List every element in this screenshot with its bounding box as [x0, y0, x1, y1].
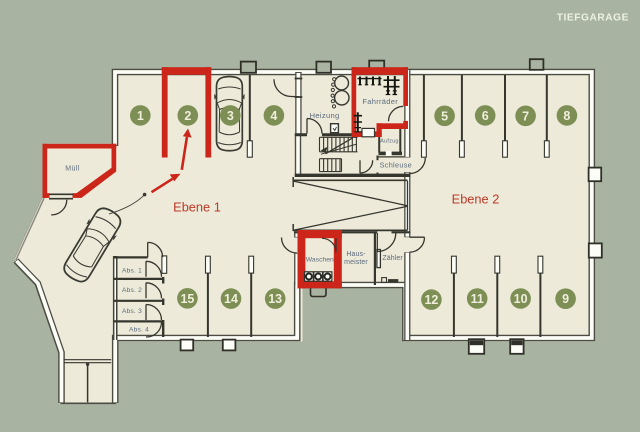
svg-text:Abs. 4: Abs. 4: [129, 327, 149, 334]
svg-text:10: 10: [514, 292, 528, 306]
svg-text:9: 9: [562, 292, 569, 306]
svg-text:14: 14: [224, 292, 238, 306]
svg-text:6: 6: [482, 109, 489, 123]
svg-text:meister: meister: [344, 259, 368, 266]
svg-text:Ebene 2: Ebene 2: [452, 192, 500, 207]
svg-text:Abs. 1: Abs. 1: [122, 268, 142, 275]
svg-text:Müll: Müll: [65, 166, 79, 173]
svg-text:Abs. 3: Abs. 3: [122, 308, 142, 315]
svg-text:15: 15: [180, 292, 194, 306]
svg-text:2: 2: [184, 109, 191, 123]
svg-text:Fahrräder: Fahrräder: [362, 97, 398, 106]
svg-text:Aufzug: Aufzug: [380, 138, 399, 144]
svg-text:1: 1: [137, 109, 144, 123]
svg-text:Heizung: Heizung: [310, 111, 340, 120]
svg-text:Zähler: Zähler: [382, 255, 403, 262]
svg-text:8: 8: [563, 109, 570, 123]
svg-text:Waschen: Waschen: [306, 256, 334, 263]
svg-text:Haus-: Haus-: [346, 251, 366, 258]
svg-text:TIEFGARAGE: TIEFGARAGE: [557, 13, 629, 24]
svg-text:5: 5: [441, 109, 448, 123]
svg-text:7: 7: [522, 109, 529, 123]
svg-text:Abs. 2: Abs. 2: [122, 287, 142, 294]
svg-text:4: 4: [270, 109, 277, 123]
svg-text:11: 11: [471, 292, 484, 306]
svg-text:13: 13: [268, 292, 282, 306]
svg-text:Schleuse: Schleuse: [380, 160, 412, 169]
svg-text:Ebene 1: Ebene 1: [173, 200, 221, 215]
svg-text:12: 12: [424, 293, 438, 307]
svg-text:3: 3: [227, 109, 234, 123]
